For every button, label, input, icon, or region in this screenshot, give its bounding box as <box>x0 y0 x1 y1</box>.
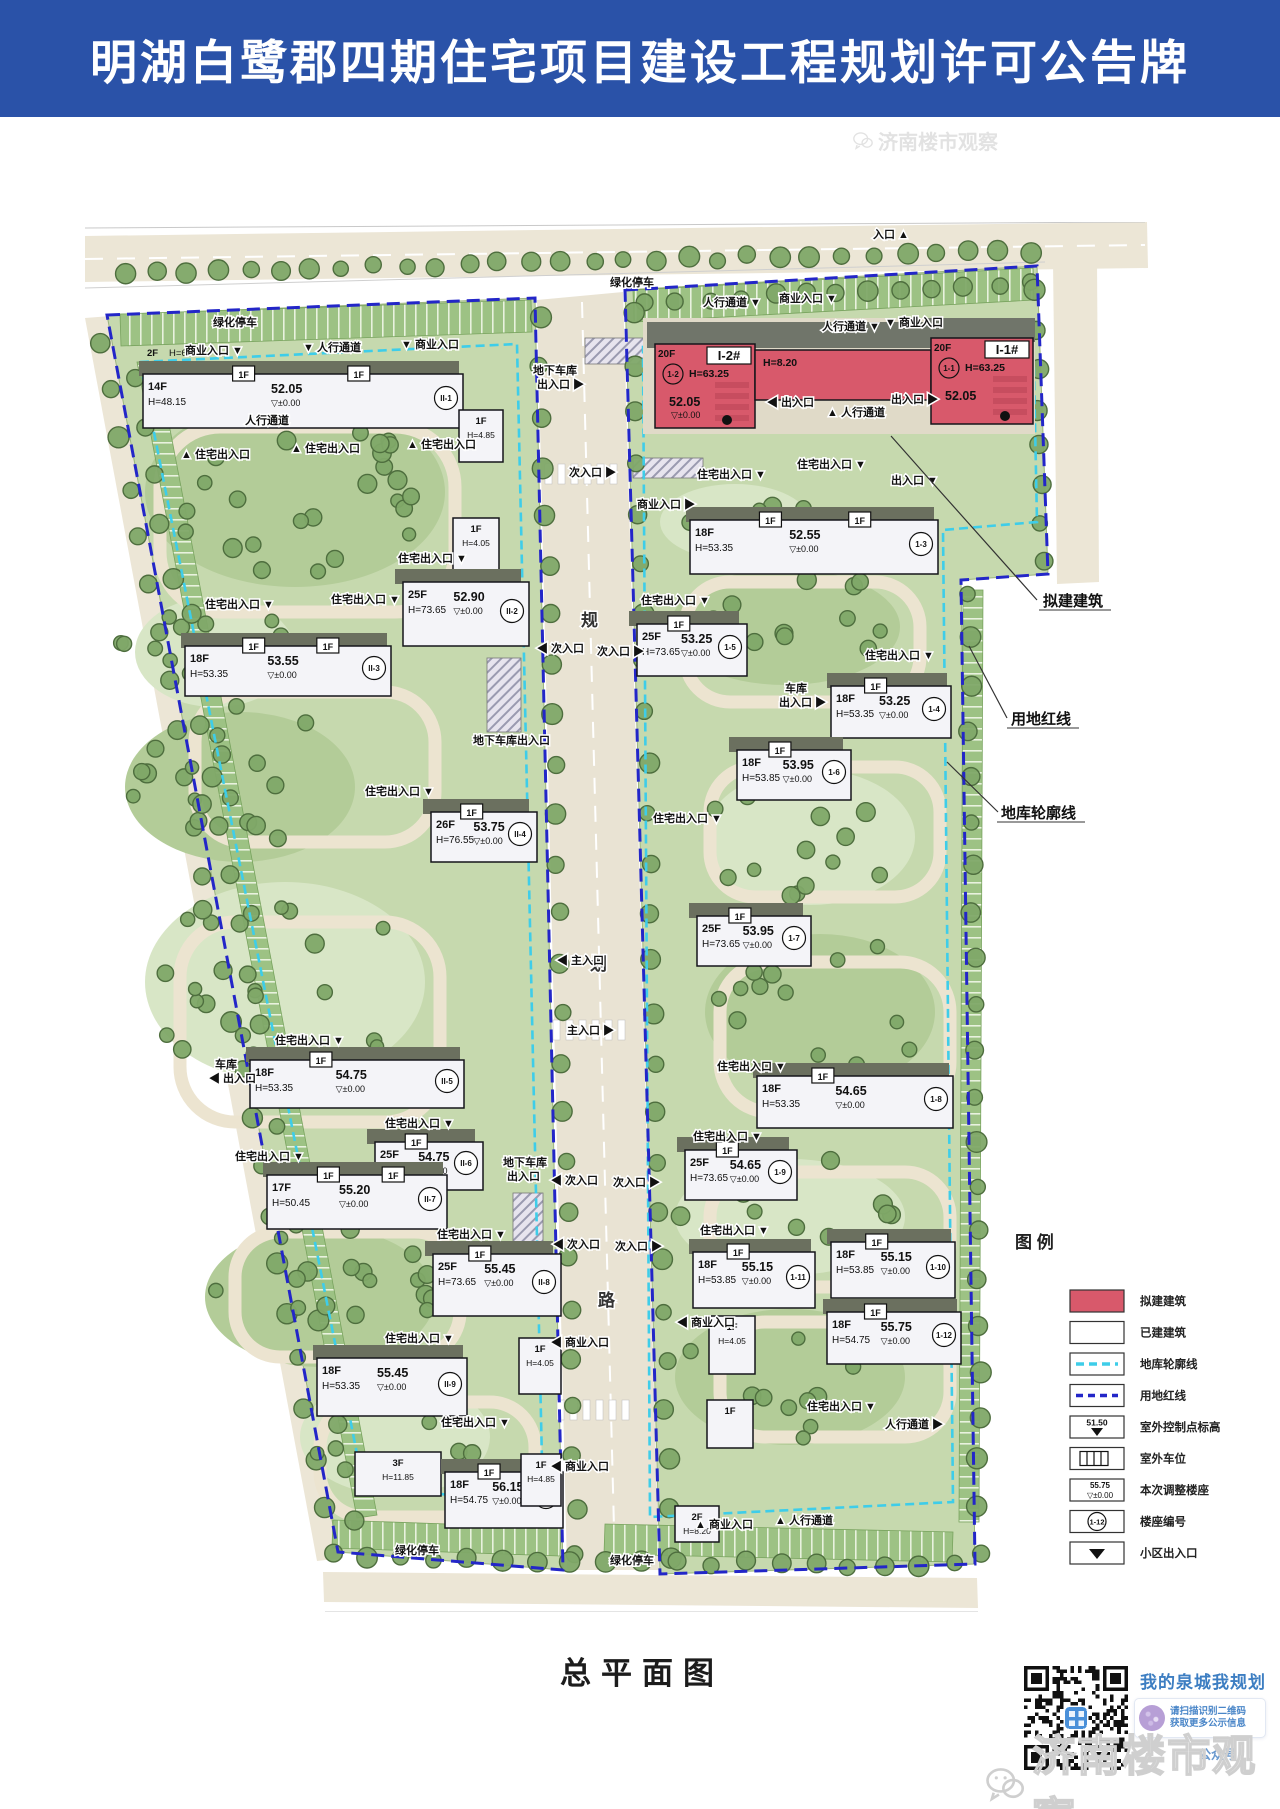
svg-text:51.50: 51.50 <box>1086 1418 1108 1428</box>
svg-text:商业入口 ▶: 商业入口 ▶ <box>637 497 695 511</box>
svg-text:II-3: II-3 <box>368 664 380 673</box>
svg-text:H=50.45: H=50.45 <box>272 1198 311 1209</box>
svg-text:1F: 1F <box>765 516 776 526</box>
building-I-1: I-1#20F1-1H=63.2552.05 <box>931 338 1033 424</box>
map-label: 车库 <box>215 1057 237 1071</box>
map-label: ◀ 出入口 <box>767 395 814 409</box>
svg-text:54.65: 54.65 <box>835 1084 866 1098</box>
svg-text:55.15: 55.15 <box>742 1260 773 1274</box>
svg-text:住宅出入口 ▼: 住宅出入口 ▼ <box>437 1227 506 1241</box>
svg-text:地库轮廓线: 地库轮廓线 <box>1140 1357 1198 1371</box>
svg-text:II-9: II-9 <box>444 1380 456 1389</box>
svg-text:人行通道: 人行通道 <box>245 413 289 427</box>
svg-text:1F: 1F <box>534 1344 545 1355</box>
svg-text:住宅出入口 ▼: 住宅出入口 ▼ <box>275 1033 344 1047</box>
svg-text:住宅出入口 ▼: 住宅出入口 ▼ <box>441 1415 510 1429</box>
svg-text:H=53.85: H=53.85 <box>742 773 781 784</box>
svg-text:18F: 18F <box>255 1067 274 1079</box>
svg-text:▽±0.00: ▽±0.00 <box>681 648 710 658</box>
map-label: 入口 ▲ <box>873 228 909 241</box>
page-title: 明湖白鹭郡四期住宅项目建设工程规划许可公告牌 <box>90 24 1190 93</box>
svg-text:小区出入口: 小区出入口 <box>1139 1546 1198 1560</box>
svg-text:I-1#: I-1# <box>996 342 1019 357</box>
map-label: ▲ 商业入口 <box>695 1517 753 1531</box>
svg-text:绿化停车: 绿化停车 <box>610 1553 654 1567</box>
building-II-4: 26FH=76.5553.75▽±0.00II-41F <box>423 799 537 862</box>
svg-text:▽±0.00: ▽±0.00 <box>881 1336 910 1346</box>
svg-text:1-6: 1-6 <box>828 768 840 777</box>
building-II-2: 25FH=73.6552.90▽±0.00II-2 <box>395 569 529 646</box>
svg-text:H=53.35: H=53.35 <box>695 543 734 554</box>
ramp <box>513 1193 543 1245</box>
svg-text:H=76.55: H=76.55 <box>436 835 475 846</box>
svg-text:H=53.35: H=53.35 <box>190 669 229 680</box>
site-plan-svg: 14FH=48.1552.05▽±0.00II-12FH=6.201F1F1FH… <box>85 222 1230 1612</box>
watermark-top-text: 济南楼市观察 <box>878 126 998 155</box>
map-label: 住宅出入口 ▼ <box>205 597 274 611</box>
watermark-top: 济南楼市观察 <box>852 126 998 155</box>
wechat-icon <box>852 131 874 150</box>
svg-text:住宅出入口 ▼: 住宅出入口 ▼ <box>398 551 467 565</box>
svg-text:H=53.35: H=53.35 <box>322 1381 361 1392</box>
svg-text:地库轮廓线: 地库轮廓线 <box>1001 804 1076 822</box>
svg-text:H=73.65: H=73.65 <box>690 1173 729 1184</box>
map-label: 绿化停车 <box>213 315 257 329</box>
svg-text:图 例: 图 例 <box>1015 1232 1054 1252</box>
svg-text:52.05: 52.05 <box>945 389 976 403</box>
svg-text:出入口 ▼: 出入口 ▼ <box>891 473 938 487</box>
svg-text:18F: 18F <box>698 1259 717 1271</box>
legend-item-adjusted: 55.75▽±0.00本次调整楼座 <box>1070 1479 1209 1501</box>
svg-text:住宅出入口 ▼: 住宅出入口 ▼ <box>365 784 434 798</box>
svg-text:53.25: 53.25 <box>681 632 712 646</box>
svg-text:入口 ▲: 入口 ▲ <box>873 228 909 241</box>
svg-text:I-2#: I-2# <box>718 348 741 363</box>
svg-text:55.45: 55.45 <box>377 1366 408 1380</box>
map-label: 绿化停车 <box>610 1553 654 1567</box>
svg-text:2F: 2F <box>147 348 158 359</box>
svg-text:拟建建筑: 拟建建筑 <box>1043 592 1103 610</box>
svg-text:▽±0.00: ▽±0.00 <box>339 1199 368 1209</box>
svg-text:地下车库: 地下车库 <box>533 363 577 377</box>
watermark: 济南楼市观察 <box>984 1722 1280 1809</box>
svg-text:H=53.35: H=53.35 <box>255 1083 294 1094</box>
building-1-4: 18FH=53.3553.25▽±0.001-41F <box>827 673 951 738</box>
map-label: 住宅出入口 ▼ <box>275 1033 344 1047</box>
svg-text:1-11: 1-11 <box>790 1273 806 1282</box>
building-1-3: 18FH=53.3552.55▽±0.001-31F1F <box>686 507 938 574</box>
svg-text:◀ 商业入口: ◀ 商业入口 <box>551 1335 609 1349</box>
svg-text:1F: 1F <box>871 1238 882 1248</box>
map-label: 次入口 ▶ <box>569 465 616 479</box>
svg-text:出入口 ▶: 出入口 ▶ <box>537 377 584 391</box>
svg-text:地下车库: 地下车库 <box>503 1155 547 1169</box>
map-label: 住宅出入口 ▼ <box>717 1059 786 1073</box>
svg-text:用地红线: 用地红线 <box>1139 1389 1186 1403</box>
ramp <box>487 658 521 732</box>
map-label: 次入口 ▶ <box>615 1239 662 1253</box>
svg-text:H=73.65: H=73.65 <box>702 939 741 950</box>
svg-text:楼座编号: 楼座编号 <box>1140 1515 1186 1529</box>
map-label: 次入口 ▶ <box>597 644 644 658</box>
map-label: 人行通道 ▼ <box>703 295 761 309</box>
svg-text:1-3: 1-3 <box>915 540 927 549</box>
svg-text:主入口 ▶: 主入口 ▶ <box>567 1023 614 1037</box>
svg-text:住宅出入口 ▼: 住宅出入口 ▼ <box>205 597 274 611</box>
svg-text:1F: 1F <box>733 1248 744 1258</box>
svg-text:H=73.65: H=73.65 <box>438 1277 477 1288</box>
svg-text:55.20: 55.20 <box>339 1183 370 1197</box>
map-label: 出入口 ▶ <box>891 392 938 406</box>
svg-text:用地红线: 用地红线 <box>1011 710 1071 728</box>
svg-text:◀ 出入口: ◀ 出入口 <box>209 1071 256 1085</box>
svg-text:18F: 18F <box>695 527 714 539</box>
building-II-3: 18FH=53.3553.55▽±0.00II-31F1F <box>181 633 391 696</box>
svg-text:▼ 商业入口: ▼ 商业入口 <box>401 337 459 351</box>
building-1-7: 25FH=73.6553.95▽±0.001-71F <box>689 903 811 966</box>
map-label: 住宅出入口 ▼ <box>437 1227 506 1241</box>
svg-text:室外车位: 室外车位 <box>1140 1452 1186 1466</box>
map-label: ▲ 住宅出入口 <box>407 437 476 451</box>
svg-text:55.75: 55.75 <box>881 1320 912 1334</box>
map-label: 住宅出入口 ▼ <box>865 648 934 662</box>
svg-text:拟建建筑: 拟建建筑 <box>1140 1294 1186 1308</box>
svg-text:H=4.05: H=4.05 <box>718 1336 746 1346</box>
building-I-2: I-2#20F1-2H=63.2552.05▽±0.00 <box>655 344 755 428</box>
map-label: ▲ 住宅出入口 <box>181 447 250 461</box>
svg-text:54.75: 54.75 <box>336 1068 367 1082</box>
building-1-11: 18FH=53.8555.15▽±0.001-111F <box>689 1239 815 1308</box>
svg-text:55.75: 55.75 <box>1090 1481 1111 1490</box>
svg-text:1F: 1F <box>818 1072 829 1082</box>
svg-text:52.55: 52.55 <box>789 528 820 542</box>
legend-item-red-box: 拟建建筑 <box>1070 1290 1186 1312</box>
map-label: ◀ 出入口 <box>209 1071 256 1085</box>
svg-text:H=53.85: H=53.85 <box>698 1275 737 1286</box>
svg-text:25F: 25F <box>702 923 721 935</box>
map-label: 主入口 ▶ <box>567 1023 614 1037</box>
map-label: ◀ 次入口 <box>551 1173 598 1187</box>
map-label: 住宅出入口 ▼ <box>641 593 710 607</box>
svg-text:次入口 ▶: 次入口 ▶ <box>615 1239 662 1253</box>
svg-text:25F: 25F <box>642 631 661 643</box>
svg-text:18F: 18F <box>832 1319 851 1331</box>
svg-text:1F: 1F <box>248 642 259 652</box>
svg-text:14F: 14F <box>148 381 167 393</box>
svg-text:▽±0.00: ▽±0.00 <box>671 410 700 420</box>
map-label: ◀ 次入口 <box>537 641 584 655</box>
legend-item-white-box: 已建建筑 <box>1070 1322 1186 1344</box>
svg-text:II-2: II-2 <box>506 607 518 616</box>
svg-text:▽±0.00: ▽±0.00 <box>453 606 482 616</box>
svg-text:H=53.35: H=53.35 <box>762 1099 801 1110</box>
legend-item-cyan-dash: 地库轮廓线 <box>1070 1353 1198 1375</box>
map-label: 住宅出入口 ▼ <box>385 1116 454 1130</box>
svg-text:1-2: 1-2 <box>667 370 679 379</box>
svg-text:住宅出入口 ▼: 住宅出入口 ▼ <box>385 1331 454 1345</box>
svg-text:◀ 次入口: ◀ 次入口 <box>551 1173 598 1187</box>
building-II-5: 18FH=53.3554.75▽±0.00II-51F <box>246 1047 464 1108</box>
svg-text:1F: 1F <box>470 524 481 535</box>
svg-text:18F: 18F <box>742 757 761 769</box>
legend-item-circle-code: 1-12楼座编号 <box>1070 1511 1186 1533</box>
map-label: 人行通道 ▶ <box>885 1417 943 1431</box>
svg-text:▲ 商业入口: ▲ 商业入口 <box>695 1517 753 1531</box>
svg-text:H=54.75: H=54.75 <box>450 1495 489 1506</box>
svg-text:已建建筑: 已建建筑 <box>1140 1326 1186 1340</box>
svg-text:▽±0.00: ▽±0.00 <box>783 774 812 784</box>
svg-text:▽±0.00: ▽±0.00 <box>336 1084 365 1094</box>
svg-text:人行通道 ▼: 人行通道 ▼ <box>822 319 880 333</box>
svg-text:H=73.65: H=73.65 <box>642 647 681 658</box>
svg-text:▼ 人行通道: ▼ 人行通道 <box>303 340 361 354</box>
svg-text:▽±0.00: ▽±0.00 <box>742 1276 771 1286</box>
svg-text:1-12: 1-12 <box>936 1331 953 1340</box>
svg-text:1F: 1F <box>775 746 786 756</box>
svg-text:25F: 25F <box>408 589 427 601</box>
building-e-shop-2: 1F <box>707 1400 753 1448</box>
building-1-10: 18FH=53.8555.15▽±0.001-101F <box>827 1229 955 1298</box>
svg-text:住宅出入口 ▼: 住宅出入口 ▼ <box>641 593 710 607</box>
svg-text:室外控制点标高: 室外控制点标高 <box>1140 1420 1221 1434</box>
svg-text:商业入口 ▼: 商业入口 ▼ <box>779 291 837 305</box>
svg-text:1F: 1F <box>323 1171 334 1181</box>
map-label: 住宅出入口 ▼ <box>653 811 722 825</box>
svg-text:18F: 18F <box>836 693 855 705</box>
map-label: 住宅出入口 ▼ <box>235 1149 304 1163</box>
map-label: 出入口 ▶ <box>537 377 584 391</box>
header: 明湖白鹭郡四期住宅项目建设工程规划许可公告牌 <box>0 0 1280 117</box>
svg-text:◀ 出入口: ◀ 出入口 <box>767 395 814 409</box>
svg-text:▽±0.00: ▽±0.00 <box>377 1382 406 1392</box>
svg-text:H=53.35: H=53.35 <box>836 709 875 720</box>
svg-text:▽±0.00: ▽±0.00 <box>473 836 502 846</box>
svg-text:◀ 商业入口: ◀ 商业入口 <box>677 1315 735 1329</box>
map-label: 住宅出入口 ▼ <box>797 457 866 471</box>
plan-title: 总平面图 <box>560 1648 724 1693</box>
svg-text:53.95: 53.95 <box>743 924 774 938</box>
svg-text:次入口 ▶: 次入口 ▶ <box>569 465 616 479</box>
svg-text:25F: 25F <box>690 1157 709 1169</box>
building-1-6: 18FH=53.8553.95▽±0.001-61F <box>729 737 851 800</box>
svg-text:商业入口 ▼: 商业入口 ▼ <box>185 343 243 357</box>
svg-text:车库: 车库 <box>215 1057 237 1071</box>
svg-text:▽±0.00: ▽±0.00 <box>881 1266 910 1276</box>
map-label: 出入口 ▶ <box>779 695 826 709</box>
svg-text:路: 路 <box>598 1290 616 1310</box>
svg-text:1F: 1F <box>475 1250 486 1260</box>
svg-text:住宅出入口 ▼: 住宅出入口 ▼ <box>653 811 722 825</box>
site-plan: 14FH=48.1552.05▽±0.00II-12FH=6.201F1F1FH… <box>85 222 1230 1612</box>
svg-text:H=8.20: H=8.20 <box>763 357 797 369</box>
svg-text:▽±0.00: ▽±0.00 <box>1087 1491 1114 1500</box>
svg-text:1-10: 1-10 <box>930 1263 947 1272</box>
svg-text:53.95: 53.95 <box>783 758 814 772</box>
svg-text:▲ 住宅出入口: ▲ 住宅出入口 <box>181 447 250 461</box>
map-label: ◀ 主入口 <box>557 953 604 967</box>
svg-text:1F: 1F <box>411 1138 422 1148</box>
svg-text:▽±0.00: ▽±0.00 <box>484 1278 513 1288</box>
svg-text:1-8: 1-8 <box>930 1095 942 1104</box>
map-label: 车库 <box>785 681 807 695</box>
legend-item-spot-elevation: 51.50室外控制点标高 <box>1070 1416 1221 1438</box>
svg-text:1F: 1F <box>870 1308 881 1318</box>
legend-item-blue-dash: 用地红线 <box>1070 1385 1186 1407</box>
map-label: 商业入口 ▶ <box>637 497 695 511</box>
svg-text:H=54.75: H=54.75 <box>832 1335 871 1346</box>
svg-text:▲ 住宅出入口: ▲ 住宅出入口 <box>291 441 360 455</box>
svg-text:1F: 1F <box>854 516 865 526</box>
svg-text:18F: 18F <box>190 653 209 665</box>
building-w-3f: 3FH=11.85 <box>355 1452 441 1496</box>
svg-text:住宅出入口 ▼: 住宅出入口 ▼ <box>697 467 766 481</box>
svg-text:▽±0.00: ▽±0.00 <box>267 670 296 680</box>
svg-text:▲ 住宅出入口: ▲ 住宅出入口 <box>407 437 476 451</box>
svg-text:18F: 18F <box>836 1249 855 1261</box>
svg-text:▲ 人行通道: ▲ 人行通道 <box>827 405 885 419</box>
map-label: 绿化停车 <box>395 1543 439 1557</box>
svg-text:住宅出入口 ▼: 住宅出入口 ▼ <box>797 457 866 471</box>
svg-text:本次调整楼座: 本次调整楼座 <box>1140 1483 1209 1497</box>
svg-text:1F: 1F <box>735 912 746 922</box>
building-II-9: 18FH=53.3555.45▽±0.00II-9 <box>313 1345 467 1416</box>
svg-text:住宅出入口 ▼: 住宅出入口 ▼ <box>865 648 934 662</box>
svg-text:3F: 3F <box>392 1458 403 1469</box>
svg-text:53.25: 53.25 <box>879 694 910 708</box>
svg-text:H=4.05: H=4.05 <box>462 538 490 548</box>
map-label: 地下车库 <box>533 363 577 377</box>
map-label: 人行通道 <box>245 413 289 427</box>
svg-text:1-7: 1-7 <box>788 934 800 943</box>
svg-text:出入口 ▶: 出入口 ▶ <box>891 392 938 406</box>
svg-text:住宅出入口 ▼: 住宅出入口 ▼ <box>331 592 400 606</box>
map-label: ◀ 商业入口 <box>551 1459 609 1473</box>
map-label: ◀ 商业入口 <box>551 1335 609 1349</box>
building-red-link: H=8.20 <box>755 350 931 400</box>
svg-text:II-5: II-5 <box>441 1077 453 1086</box>
svg-text:地下车库出入口: 地下车库出入口 <box>473 733 550 747</box>
svg-text:住宅出入口 ▼: 住宅出入口 ▼ <box>693 1129 762 1143</box>
svg-text:II-1: II-1 <box>440 394 452 403</box>
svg-text:H=4.85: H=4.85 <box>527 1474 555 1484</box>
svg-text:规: 规 <box>581 611 598 630</box>
svg-text:住宅出入口 ▼: 住宅出入口 ▼ <box>807 1399 876 1413</box>
svg-text:1-12: 1-12 <box>1089 1518 1104 1527</box>
svg-text:1-9: 1-9 <box>774 1168 786 1177</box>
svg-text:18F: 18F <box>322 1365 341 1377</box>
svg-text:52.90: 52.90 <box>453 590 484 604</box>
building-1-9: 25FH=73.6554.65▽±0.001-91F <box>677 1137 797 1200</box>
svg-text:II-8: II-8 <box>538 1278 550 1287</box>
map-label: 住宅出入口 ▼ <box>398 551 467 565</box>
svg-text:出入口 ▶: 出入口 ▶ <box>779 695 826 709</box>
map-label: 住宅出入口 ▼ <box>365 784 434 798</box>
svg-text:H=53.85: H=53.85 <box>836 1265 875 1276</box>
svg-text:住宅出入口 ▼: 住宅出入口 ▼ <box>235 1149 304 1163</box>
svg-text:1-5: 1-5 <box>724 643 736 652</box>
svg-text:H=48.15: H=48.15 <box>148 397 187 408</box>
svg-text:1F: 1F <box>475 416 486 427</box>
svg-text:1F: 1F <box>354 370 365 380</box>
svg-text:1F: 1F <box>323 642 334 652</box>
map-label: 住宅出入口 ▼ <box>331 592 400 606</box>
svg-text:18F: 18F <box>762 1083 781 1095</box>
map-label: 地下车库 <box>503 1155 547 1169</box>
svg-text:H=73.65: H=73.65 <box>408 605 447 616</box>
svg-text:1F: 1F <box>674 620 685 630</box>
legend-item-parking: 室外车位 <box>1070 1448 1186 1470</box>
map-label: ▼ 商业入口 <box>401 337 459 351</box>
map-label: 人行通道 ▼ <box>822 319 880 333</box>
svg-text:◀ 次入口: ◀ 次入口 <box>537 641 584 655</box>
map-label: ◀ 次入口 <box>553 1237 600 1251</box>
svg-text:1F: 1F <box>388 1171 399 1181</box>
map-label: 住宅出入口 ▼ <box>807 1399 876 1413</box>
svg-text:▼ 商业入口: ▼ 商业入口 <box>885 315 943 329</box>
svg-text:26F: 26F <box>436 819 455 831</box>
svg-text:H=63.25: H=63.25 <box>965 362 1005 374</box>
wechat-icon <box>984 1765 1026 1803</box>
svg-text:54.65: 54.65 <box>730 1158 761 1172</box>
svg-text:▽±0.00: ▽±0.00 <box>835 1100 864 1110</box>
svg-text:17F: 17F <box>272 1182 291 1194</box>
map-label: 出入口 ▼ <box>891 473 938 487</box>
map-label: 次入口 ▶ <box>613 1175 660 1189</box>
svg-text:II-4: II-4 <box>514 830 526 839</box>
svg-text:56.15: 56.15 <box>492 1480 523 1494</box>
svg-text:1-1: 1-1 <box>943 364 955 373</box>
svg-text:1F: 1F <box>466 808 477 818</box>
svg-text:II-6: II-6 <box>460 1159 472 1168</box>
svg-text:20F: 20F <box>658 349 675 360</box>
map-label: ▲ 住宅出入口 <box>291 441 360 455</box>
svg-text:1F: 1F <box>238 370 249 380</box>
svg-text:绿化停车: 绿化停车 <box>395 1543 439 1557</box>
map-label: 住宅出入口 ▼ <box>697 467 766 481</box>
svg-text:住宅出入口 ▼: 住宅出入口 ▼ <box>385 1116 454 1130</box>
svg-text:▲ 人行通道: ▲ 人行通道 <box>775 1513 833 1527</box>
svg-text:52.05: 52.05 <box>271 382 302 396</box>
svg-text:25F: 25F <box>438 1261 457 1273</box>
svg-text:55.45: 55.45 <box>484 1262 515 1276</box>
svg-text:▽±0.00: ▽±0.00 <box>271 398 300 408</box>
map-label: 绿化停车 <box>610 275 654 289</box>
svg-text:▽±0.00: ▽±0.00 <box>730 1174 759 1184</box>
building-II-8: 25FH=73.6555.45▽±0.00II-81F <box>425 1241 561 1316</box>
svg-text:18F: 18F <box>450 1479 469 1491</box>
svg-text:52.05: 52.05 <box>669 395 700 409</box>
svg-text:住宅出入口 ▼: 住宅出入口 ▼ <box>700 1223 769 1237</box>
svg-text:出入口: 出入口 <box>507 1169 540 1183</box>
svg-text:◀ 商业入口: ◀ 商业入口 <box>551 1459 609 1473</box>
svg-text:1F: 1F <box>722 1146 733 1156</box>
svg-text:车库: 车库 <box>785 681 807 695</box>
svg-text:H=63.25: H=63.25 <box>689 368 729 380</box>
svg-text:1-4: 1-4 <box>928 705 940 714</box>
svg-text:1F: 1F <box>316 1056 327 1066</box>
map-label: 地下车库出入口 <box>473 733 550 747</box>
qr-caption: 我的泉城我规划 <box>1140 1668 1266 1693</box>
svg-text:1F: 1F <box>535 1460 546 1471</box>
map-label: 住宅出入口 ▼ <box>700 1223 769 1237</box>
svg-text:人行通道 ▼: 人行通道 ▼ <box>703 295 761 309</box>
legend-item-triangle: 小区出入口 <box>1070 1542 1198 1564</box>
svg-text:1F: 1F <box>870 682 881 692</box>
map-label: ▼ 人行通道 <box>303 340 361 354</box>
svg-text:住宅出入口 ▼: 住宅出入口 ▼ <box>717 1059 786 1073</box>
svg-text:▽±0.00: ▽±0.00 <box>743 940 772 950</box>
announcement-board: 明湖白鹭郡四期住宅项目建设工程规划许可公告牌 济南楼市观察 14FH=48.15… <box>0 0 1280 1809</box>
